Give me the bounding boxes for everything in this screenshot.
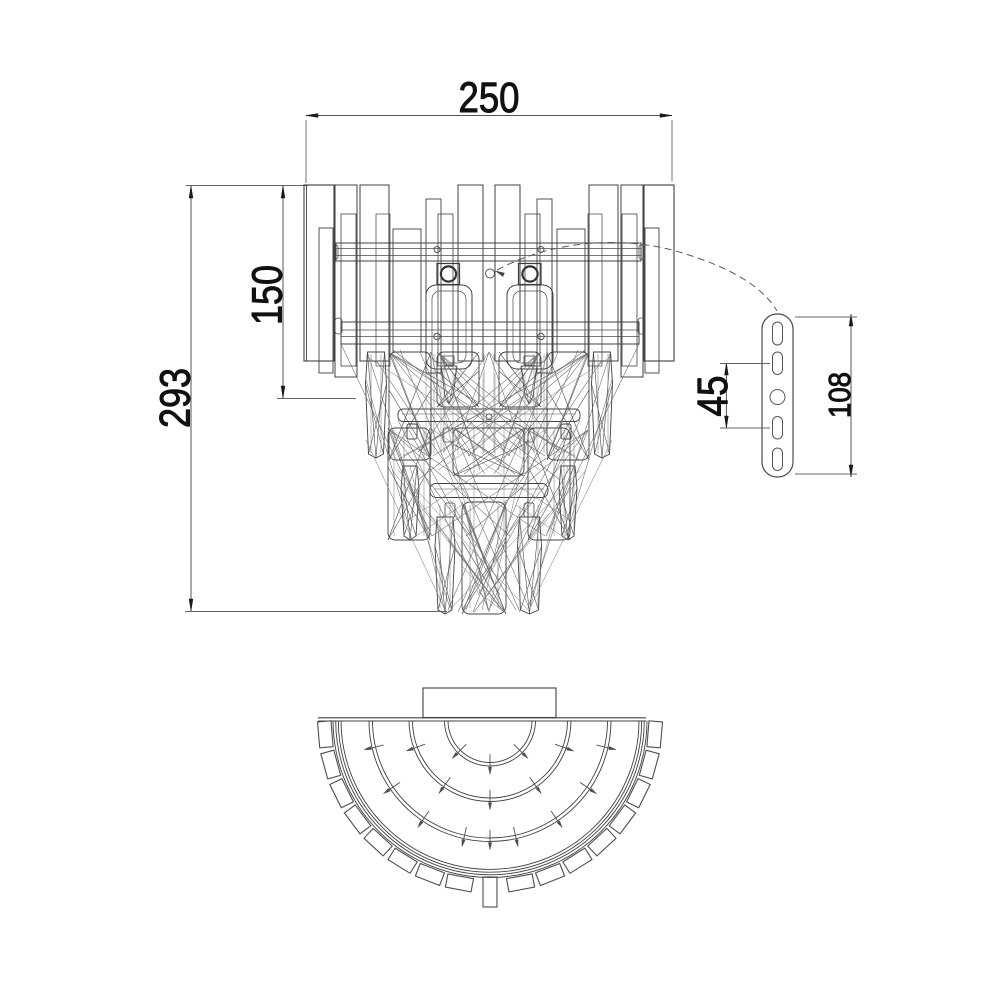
svg-text:108: 108 bbox=[822, 372, 857, 418]
svg-text:250: 250 bbox=[459, 74, 520, 122]
svg-text:45: 45 bbox=[689, 376, 737, 417]
svg-text:150: 150 bbox=[244, 265, 292, 325]
svg-text:293: 293 bbox=[152, 368, 200, 428]
